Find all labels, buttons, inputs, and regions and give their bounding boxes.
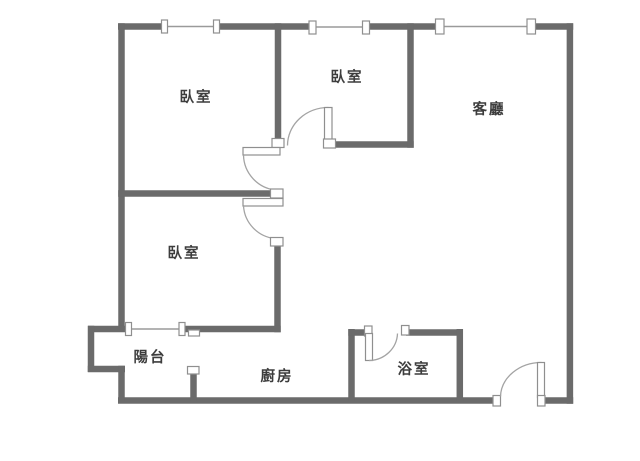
door-swing-arc: [501, 363, 542, 397]
window-post: [309, 21, 316, 34]
door-jamb: [324, 139, 336, 148]
window-living-room-top: [436, 19, 536, 34]
window-post: [126, 323, 132, 336]
door-swing-arc: [288, 108, 329, 146]
fixtures: [188, 330, 200, 374]
door-leaf: [243, 199, 283, 207]
door-swing-arc: [244, 206, 276, 239]
window-bedroom1-top: [162, 20, 220, 33]
window-post: [363, 21, 370, 34]
label-balcony: 陽台: [134, 348, 167, 366]
door-bedroom1: [243, 139, 284, 199]
kitchen-wall-cap: [189, 330, 200, 336]
door-jamb: [272, 139, 284, 148]
door-jamb: [271, 238, 284, 247]
label-bedroom-top-middle: 臥室: [331, 68, 364, 86]
window-post: [436, 19, 445, 34]
window-post: [527, 19, 536, 34]
door-leaf: [366, 334, 373, 361]
door-jamb: [538, 396, 546, 407]
door-bedroom2: [288, 108, 336, 149]
partition-end-cap: [188, 367, 200, 375]
door-jamb: [493, 396, 501, 407]
label-kitchen: 廚房: [261, 367, 294, 385]
door-leaf: [243, 148, 280, 156]
door-bathroom: [365, 326, 410, 361]
window-post: [214, 20, 220, 33]
door-bedroom3: [243, 199, 283, 247]
label-bedroom-top-left: 臥室: [180, 88, 213, 106]
window-bedroom2-top: [309, 21, 370, 34]
door-entry: [493, 363, 545, 407]
room-labels: 臥室 臥室 客廳 臥室 陽台 廚房 浴室: [134, 68, 506, 385]
floor-plan-drawing: 臥室 臥室 客廳 臥室 陽台 廚房 浴室: [0, 0, 640, 461]
label-bedroom-bottom-left: 臥室: [168, 244, 201, 262]
window-post: [179, 323, 185, 336]
label-bathroom: 浴室: [398, 360, 431, 378]
door-swing-arc: [244, 155, 276, 190]
door-jamb: [402, 326, 410, 336]
door-swing-arc: [369, 334, 398, 361]
label-living-room: 客廳: [472, 100, 506, 118]
floor-plan: 臥室 臥室 客廳 臥室 陽台 廚房 浴室: [0, 0, 640, 461]
interior-walls: [118, 23, 463, 401]
door-jamb: [271, 189, 284, 198]
window-bedroom3-balcony: [126, 323, 186, 336]
door-leaf: [538, 363, 545, 398]
window-post: [162, 20, 168, 33]
